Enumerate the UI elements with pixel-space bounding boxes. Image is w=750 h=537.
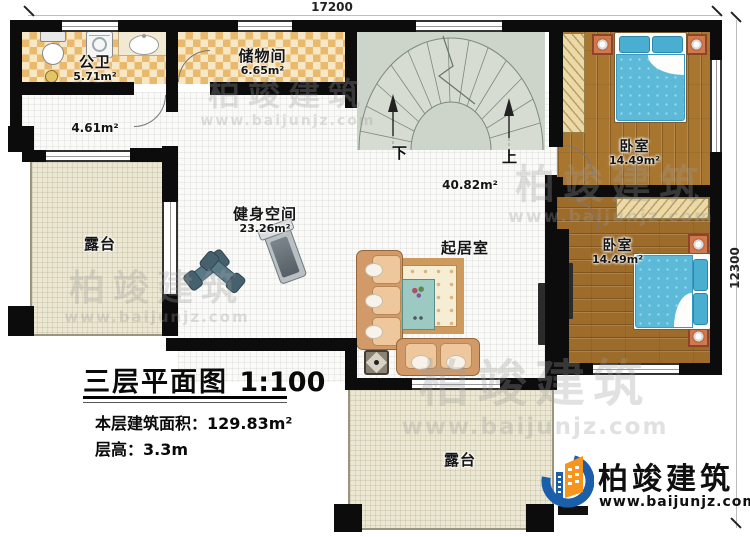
bedroom-bottom-name: 卧室	[560, 238, 675, 254]
wall-stairs-east	[549, 20, 563, 147]
label-gym: 健身空间 23.26m²	[190, 206, 340, 236]
baijun-logo-name: 柏竣建筑	[598, 454, 734, 498]
floor-height-line: 层高：3.3m	[95, 436, 188, 460]
window-bedroom-bottom	[593, 363, 679, 375]
plan-title-text: 三层平面图	[83, 367, 228, 398]
gym-name: 健身空间	[190, 206, 340, 223]
baijun-logo-website: www.baijunjz.com	[599, 494, 750, 510]
sofa-side	[396, 338, 480, 376]
wall-bathroom-south	[10, 82, 134, 95]
wall-terrace-left-band2	[130, 148, 166, 162]
label-living-area: 40.82m²	[405, 179, 535, 193]
bedroom-bottom-area: 14.49m²	[560, 254, 675, 267]
window-bedroom-top	[710, 60, 722, 152]
floor-plan: 公卫 5.71m² 储物间 6.65m² 4.61m² 露台 健身空间 23.2…	[0, 0, 750, 537]
sofa-pillow	[411, 355, 431, 370]
wall-living-south-right	[500, 378, 557, 390]
label-terrace-left: 露台	[40, 236, 160, 253]
coffee-table	[402, 279, 435, 330]
wall-living-east	[545, 175, 557, 378]
sofa-pillow	[446, 355, 466, 370]
wall-bathroom-storage	[166, 20, 178, 112]
floor-height-value: 3.3m	[143, 440, 188, 459]
wall-between-bedrooms	[549, 185, 722, 197]
living-area: 40.82m²	[442, 178, 498, 192]
bed-pillow	[619, 36, 650, 53]
gym-area: 23.26m²	[190, 223, 340, 236]
bathroom-vanity	[118, 31, 168, 56]
sink	[129, 35, 159, 55]
wall-corner-west	[8, 126, 34, 152]
nightstand	[686, 34, 707, 55]
stairs-up-label: 上	[502, 146, 517, 167]
floor-height-label: 层高：	[95, 440, 143, 459]
window-stairs	[416, 20, 502, 32]
label-living: 起居室	[415, 240, 515, 257]
side-table	[364, 350, 389, 375]
bed-pillow	[652, 36, 683, 53]
wall-terrace-left-pier-top	[162, 146, 178, 202]
wall-storage-south	[210, 82, 345, 95]
baijun-logo-icon	[536, 450, 594, 522]
wall-terrace-left-band	[22, 150, 46, 162]
plan-title: 三层平面图 1:100	[83, 360, 325, 399]
label-bedroom-bottom: 卧室 14.49m²	[560, 238, 675, 267]
floor-area-value: 129.83m²	[207, 414, 292, 433]
nightstand	[592, 34, 613, 55]
window-terrace-left-east	[162, 202, 178, 294]
wall-terrace-left-pier-bottom	[162, 294, 178, 336]
label-hallway-area: 4.61m²	[45, 122, 145, 136]
wardrobe-bedroom-top	[561, 33, 585, 133]
dumbbells	[196, 248, 240, 294]
plan-scale: 1:100	[239, 367, 325, 398]
floor-area-label: 本层建筑面积：	[95, 414, 207, 433]
title-rule-thin	[83, 402, 287, 403]
bedroom-top-name: 卧室	[577, 139, 692, 155]
wardrobe-bedroom-bottom	[616, 198, 709, 219]
storage-name: 储物间	[185, 48, 340, 65]
sofa-pillow	[365, 325, 383, 339]
spiral-staircase	[357, 32, 545, 150]
dimension-top: 17200	[292, 0, 372, 14]
bedroom-top-area: 14.49m²	[577, 155, 692, 168]
terrace-bottom-name: 露台	[395, 452, 525, 469]
floor-area-line: 本层建筑面积：129.83m²	[95, 410, 292, 434]
bed-pillow	[693, 293, 708, 325]
bathroom-area: 5.71m²	[30, 71, 160, 84]
window-living-terrace	[412, 378, 500, 390]
bed-bedroom-top	[614, 32, 687, 123]
wall-west	[10, 20, 22, 132]
sofa-main	[356, 250, 403, 350]
sofa-pillow	[365, 294, 383, 308]
label-terrace-bottom: 露台	[395, 452, 525, 469]
wall-storage-east	[345, 20, 357, 108]
window-terrace-left	[46, 150, 130, 162]
label-bedroom-top: 卧室 14.49m²	[577, 139, 692, 168]
sofa-pillow	[365, 263, 383, 277]
bathroom-name: 公卫	[30, 54, 160, 71]
storage-area: 6.65m²	[185, 65, 340, 78]
wall-terrace-left-corner	[8, 306, 34, 336]
title-rule-thick	[83, 396, 287, 399]
bed-pillow	[693, 259, 708, 291]
window-bathroom	[62, 20, 118, 32]
living-name: 起居室	[415, 240, 515, 257]
bed-duvet	[616, 54, 685, 121]
terrace-left-name: 露台	[40, 236, 160, 253]
toilet-tank	[40, 31, 66, 42]
hallway-area: 4.61m²	[71, 121, 118, 135]
dimension-right: 12300	[728, 238, 744, 298]
label-bathroom: 公卫 5.71m²	[30, 54, 160, 84]
dimension-line-top	[28, 15, 720, 16]
wall-gym-south	[166, 338, 357, 351]
nightstand	[688, 234, 709, 255]
wall-terrace-bottom-corner-left	[334, 504, 362, 532]
wall-living-south-left	[345, 378, 412, 390]
stairs-down-label: 下	[392, 142, 407, 163]
window-storage	[238, 20, 292, 32]
label-storage: 储物间 6.65m²	[185, 48, 340, 78]
